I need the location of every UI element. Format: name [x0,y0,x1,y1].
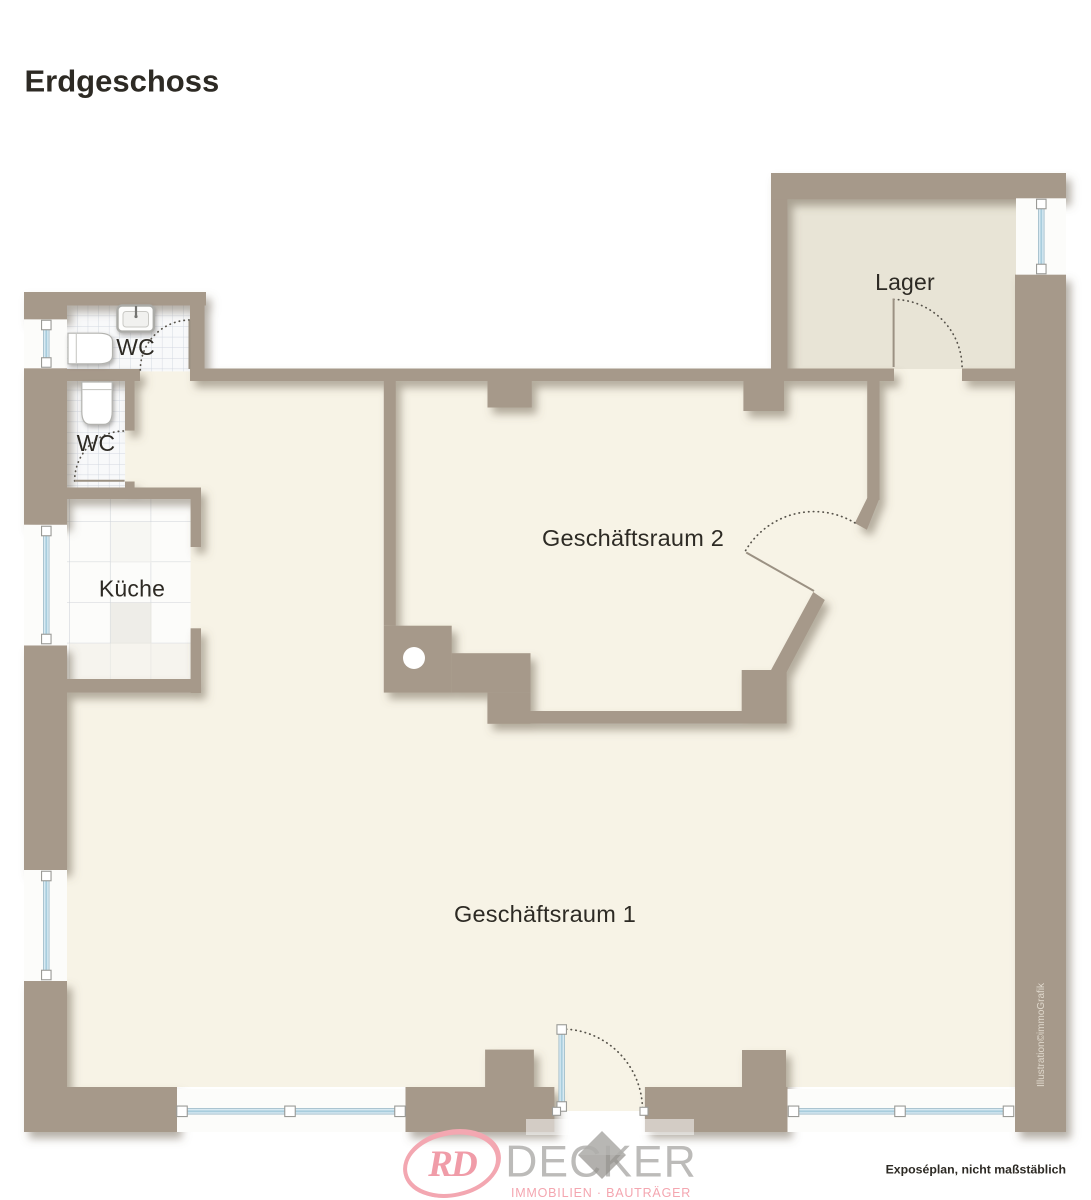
svg-text:Geschäftsraum 2: Geschäftsraum 2 [542,525,724,551]
svg-text:IMMOBILIEN · BAUTRÄGER: IMMOBILIEN · BAUTRÄGER [511,1186,691,1200]
svg-text:Erdgeschoss: Erdgeschoss [25,64,220,99]
svg-text:Lager: Lager [875,269,935,295]
svg-text:WC: WC [116,334,155,360]
svg-text:Exposéplan, nicht maßstäblich: Exposéplan, nicht maßstäblich [886,1163,1066,1177]
svg-text:RD: RD [427,1144,477,1185]
svg-text:Küche: Küche [99,576,165,602]
svg-text:Geschäftsraum 1: Geschäftsraum 1 [454,901,636,927]
svg-text:WC: WC [77,430,116,456]
svg-text:Illustration©immoGrafik: Illustration©immoGrafik [1036,982,1047,1087]
